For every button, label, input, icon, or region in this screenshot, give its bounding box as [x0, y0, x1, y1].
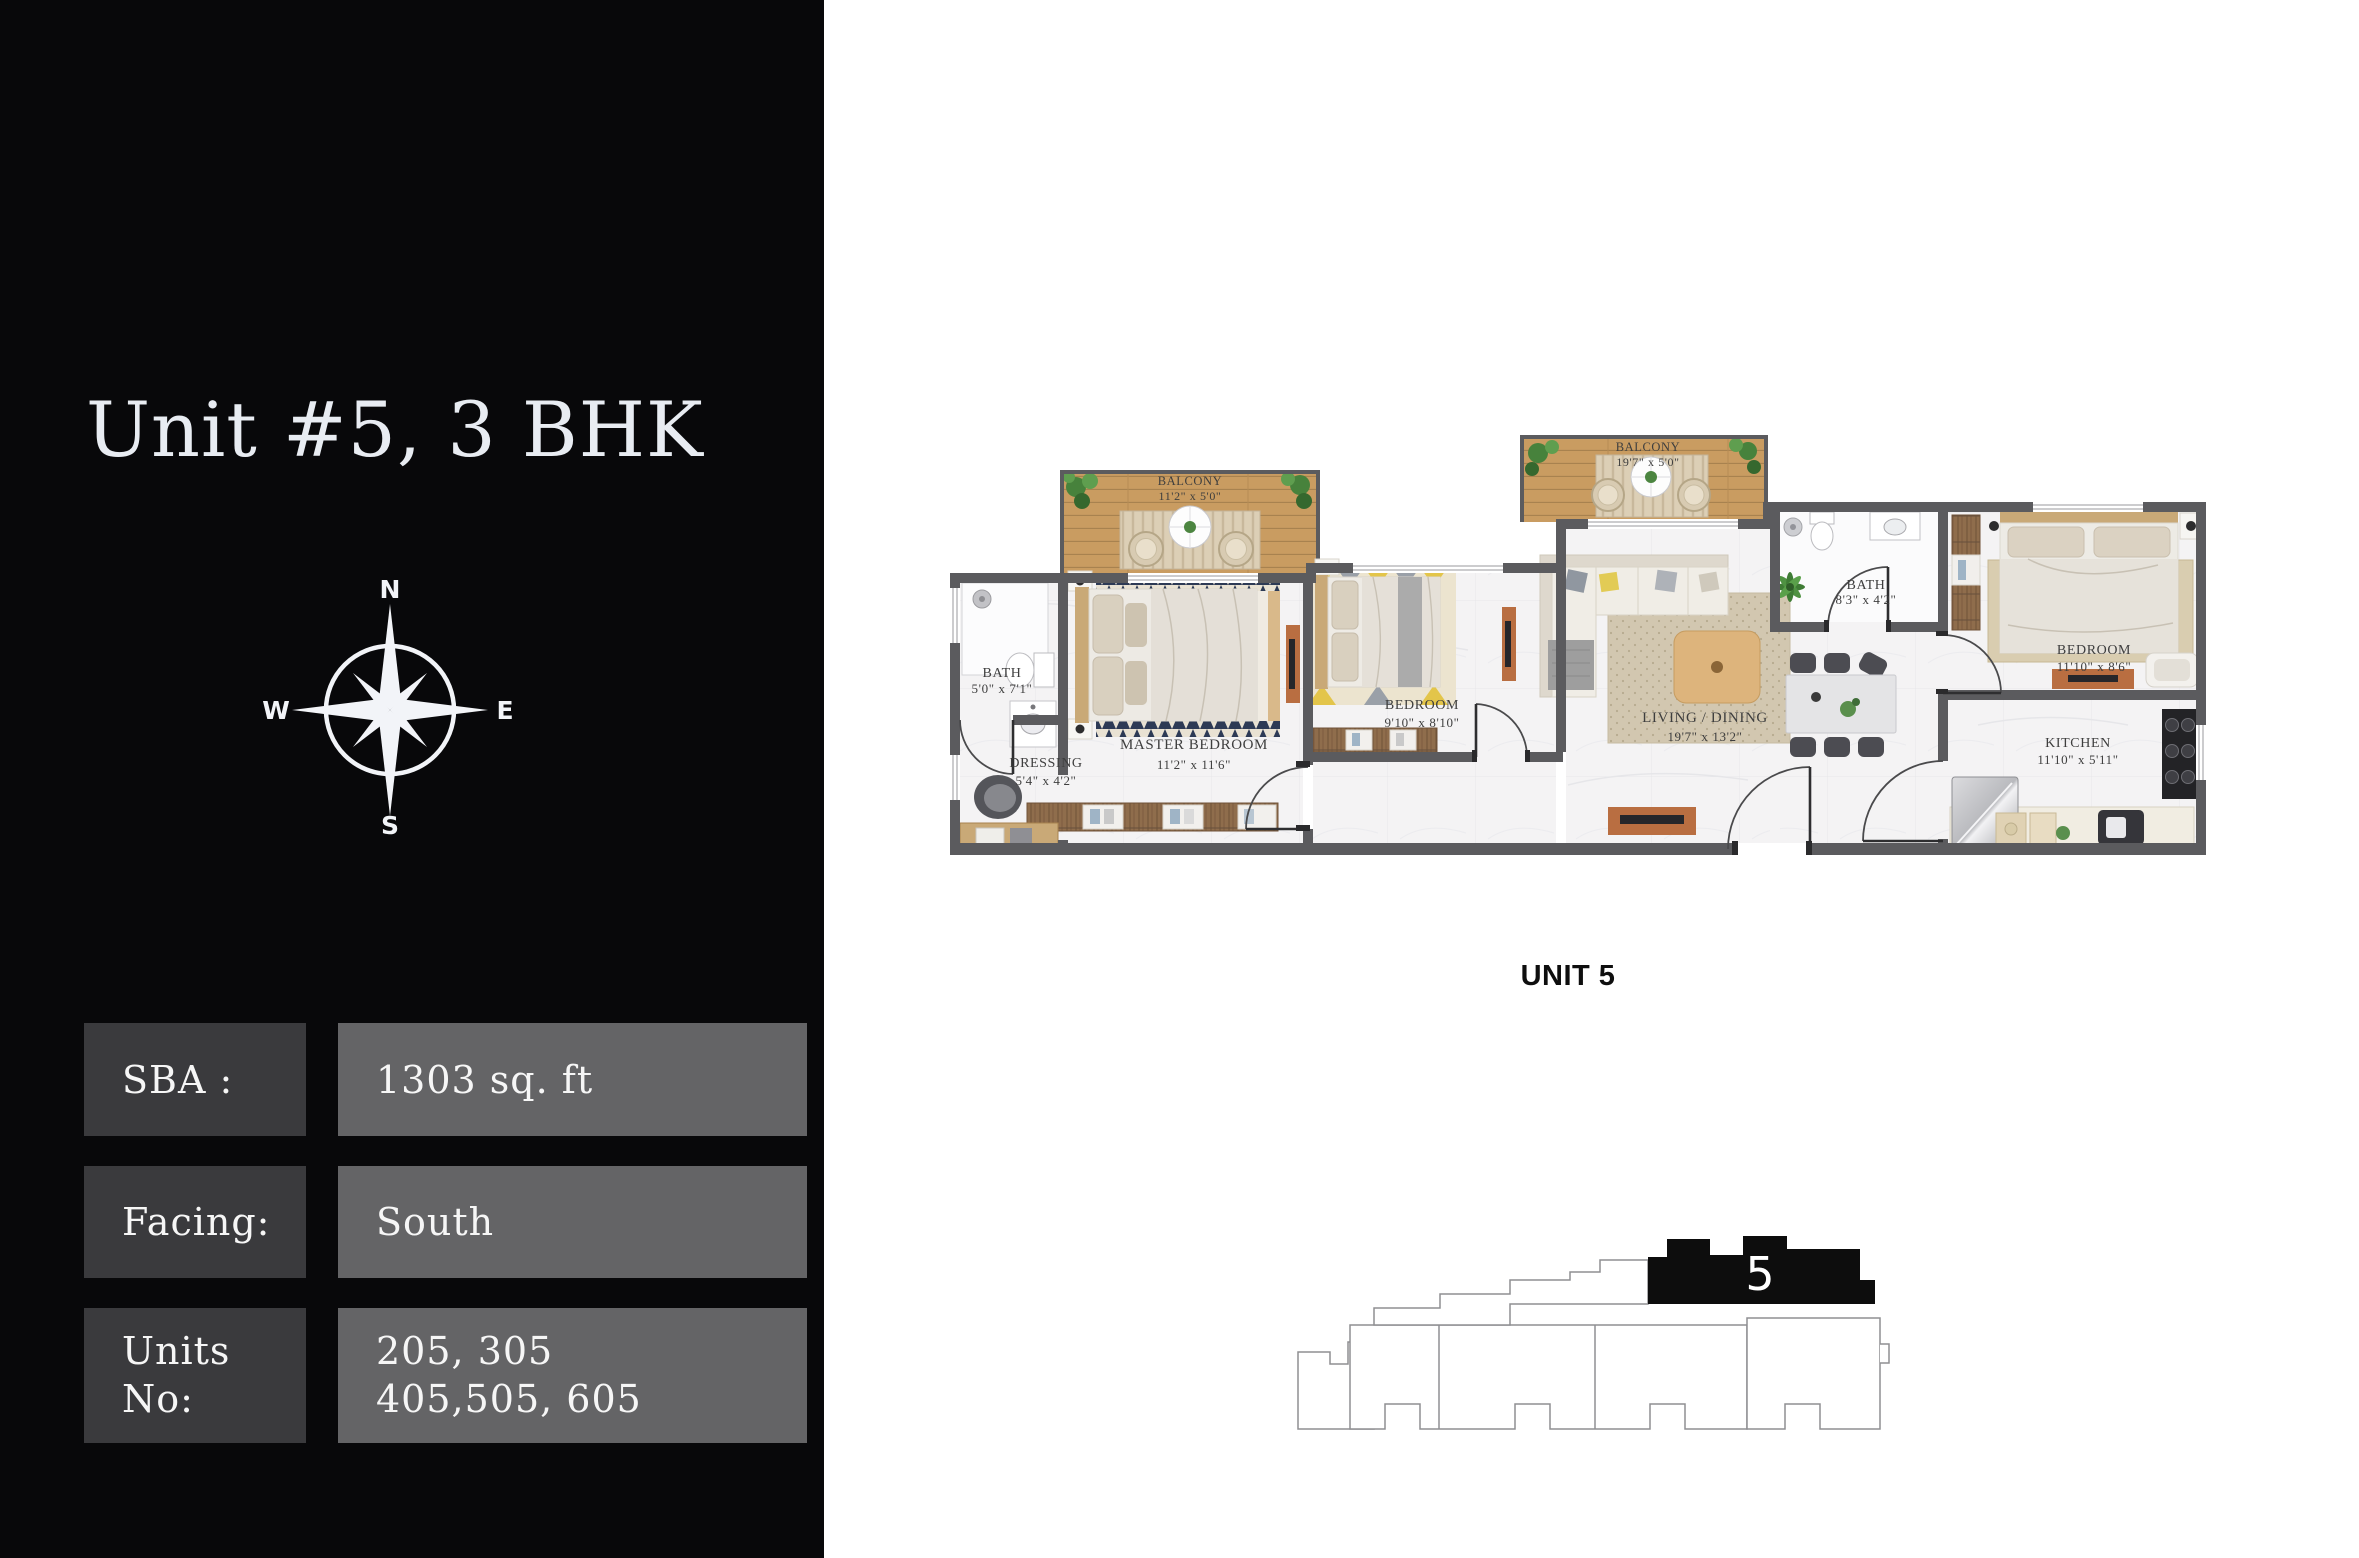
room-dims: 19'7" x 13'2" [1667, 729, 1742, 744]
info-label-text: SBA : [122, 1058, 306, 1102]
window [1353, 563, 1503, 573]
room-dims: 11'2" x 5'0" [1159, 489, 1222, 503]
sliding-door [1128, 573, 1258, 583]
floor-plan: BALCONY 11'2" x 5'0" BATH 5'0" x 7'1" DR… [948, 425, 2208, 857]
dining-set [1786, 650, 1896, 757]
info-value-text: 405,505, 605 [376, 1376, 807, 1424]
room-label: BATH [1847, 578, 1886, 593]
room-label: KITCHEN [2045, 736, 2111, 751]
window [950, 755, 960, 800]
compass-rose-icon: N S W E [258, 578, 522, 838]
room-dims: 5'4" x 4'2" [1016, 773, 1077, 788]
info-label-text: Units [122, 1328, 306, 1376]
room-label: LIVING / DINING [1642, 710, 1768, 726]
info-label-facing: Facing: [84, 1166, 306, 1278]
master-wardrobe [1027, 803, 1278, 831]
compass-west-label: W [262, 696, 290, 725]
room-dims: 5'0" x 7'1" [972, 681, 1033, 696]
room-dims: 11'10" x 5'11" [2037, 752, 2118, 767]
room-label: BEDROOM [2057, 643, 2131, 658]
window [2196, 725, 2206, 780]
info-value-text: 205, 305 [376, 1328, 807, 1376]
room-label: MASTER BEDROOM [1120, 737, 1268, 753]
info-value-units: 205, 305 405,505, 605 [338, 1308, 807, 1443]
compass-south-label: S [381, 811, 399, 838]
sidebar: Unit #5, 3 BHK N S W E SBA : 1303 sq. ft… [0, 0, 824, 1558]
key-plan-unit-number: 5 [1745, 1247, 1774, 1301]
info-value-sba: 1303 sq. ft [338, 1023, 807, 1136]
room-dims: 9'10" x 8'10" [1384, 715, 1459, 730]
room-dims: 11'10" x 8'6" [2057, 659, 2132, 674]
room-dims: 19'7" x 5'0" [1616, 455, 1679, 469]
info-label-units: Units No: [84, 1308, 306, 1443]
unit-title: Unit #5, 3 BHK [86, 390, 704, 470]
info-value-text: 1303 sq. ft [376, 1058, 807, 1102]
bedroom-2-wardrobe [1313, 728, 1437, 752]
sliding-door [1588, 519, 1738, 529]
room-label: DRESSING [1009, 756, 1082, 771]
window [950, 588, 960, 643]
compass-east-label: E [496, 696, 513, 725]
info-label-text: Facing: [122, 1200, 306, 1244]
key-plan: 5 [1290, 1232, 1910, 1447]
info-value-facing: South [338, 1166, 807, 1278]
info-label-sba: SBA : [84, 1023, 306, 1136]
room-label: BALCONY [1616, 440, 1681, 454]
room-label: BATH [983, 666, 1022, 681]
room-dims: 8'3" x 4'2" [1836, 592, 1897, 607]
window [2033, 502, 2143, 512]
info-label-text: No: [122, 1376, 306, 1424]
info-value-text: South [376, 1200, 807, 1244]
room-label: BEDROOM [1385, 698, 1459, 713]
room-label: BALCONY [1158, 474, 1223, 488]
room-dims: 11'2" x 11'6" [1157, 757, 1231, 772]
compass-north-label: N [380, 578, 401, 604]
unit-caption: UNIT 5 [1478, 960, 1658, 993]
